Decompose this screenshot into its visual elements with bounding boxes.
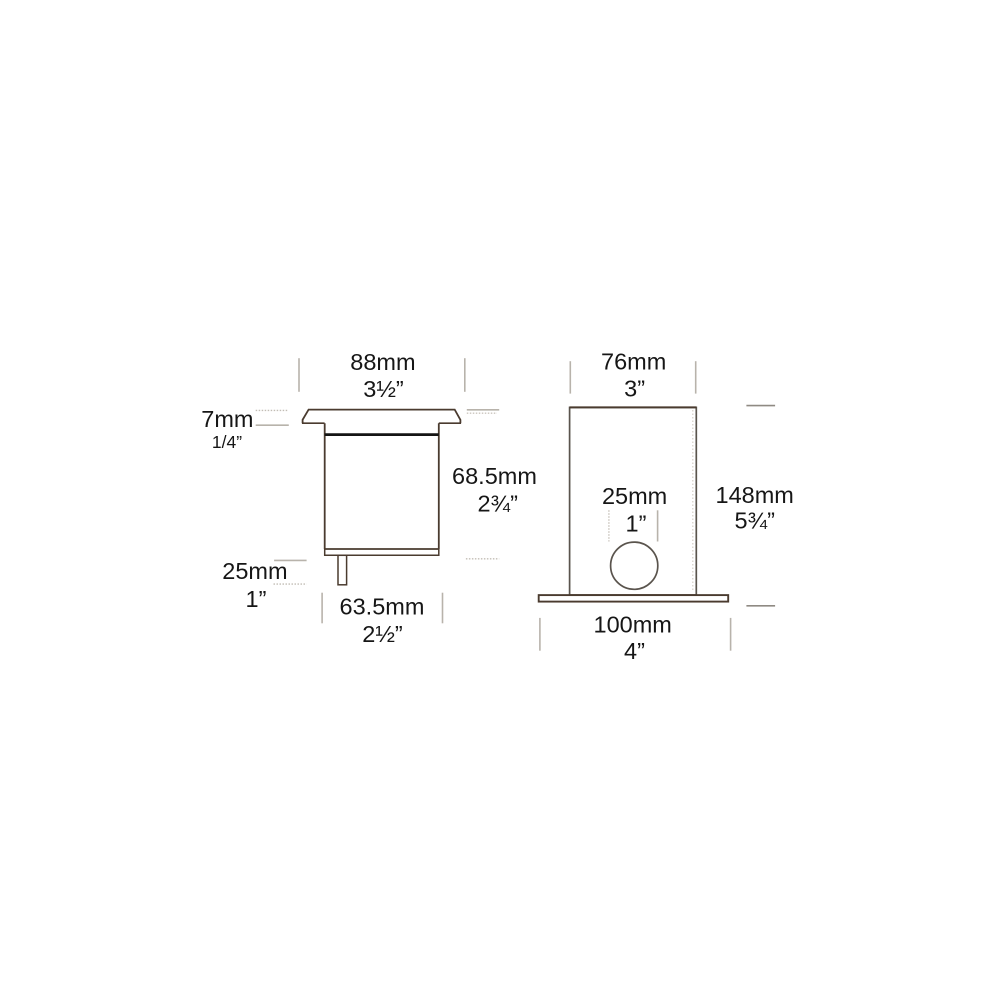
svg-text:2½”: 2½”: [362, 621, 403, 647]
svg-text:1”: 1”: [626, 510, 647, 536]
svg-text:76mm: 76mm: [601, 349, 666, 375]
svg-text:25mm: 25mm: [602, 483, 667, 509]
svg-text:3½”: 3½”: [363, 376, 404, 402]
svg-text:1”: 1”: [246, 586, 267, 612]
svg-text:100mm: 100mm: [594, 611, 672, 637]
svg-text:2¾”: 2¾”: [477, 490, 518, 516]
svg-text:4”: 4”: [624, 638, 645, 664]
svg-text:5¾”: 5¾”: [734, 508, 775, 534]
svg-text:1/4”: 1/4”: [212, 432, 242, 452]
svg-text:7mm: 7mm: [201, 406, 253, 432]
svg-text:148mm: 148mm: [716, 482, 794, 508]
svg-text:63.5mm: 63.5mm: [340, 594, 425, 620]
svg-text:88mm: 88mm: [350, 349, 415, 375]
svg-text:68.5mm: 68.5mm: [452, 463, 537, 489]
svg-text:3”: 3”: [624, 376, 645, 402]
svg-text:25mm: 25mm: [222, 558, 287, 584]
